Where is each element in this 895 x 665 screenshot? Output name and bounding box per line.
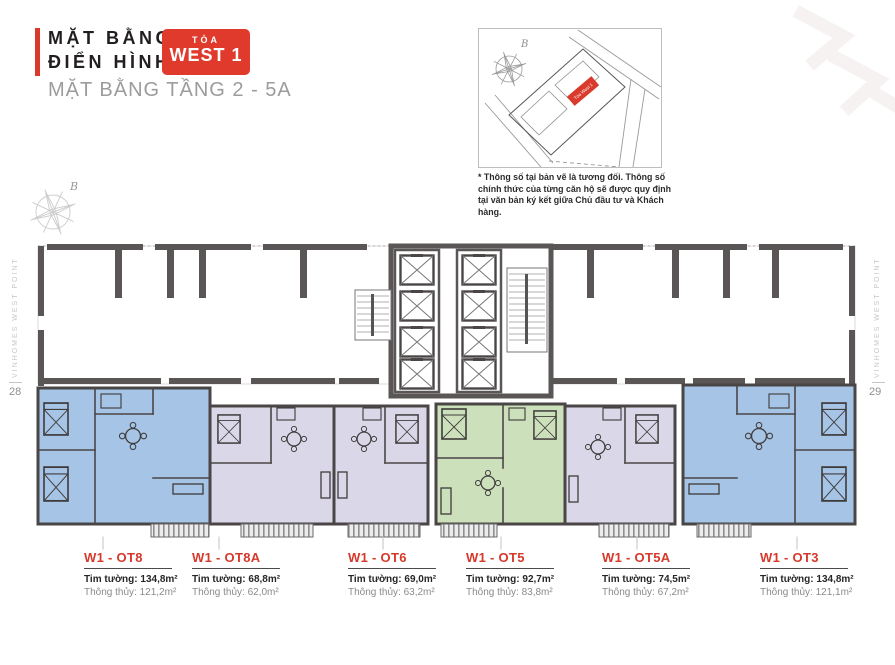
unit-area-clear: Thông thủy: 121,1m²	[760, 587, 870, 598]
unit-area-clear: Thông thủy: 67,2m²	[602, 587, 712, 598]
left-rail-tick	[9, 382, 22, 383]
unit-label-ot3: W1 - OT3 Tim tường: 134,8m² Thông thủy: …	[760, 550, 870, 598]
brochure-page: MẶT BẰNG ĐIỂN HÌNH TÒA WEST 1 MẶT BẰNG T…	[0, 0, 895, 665]
left-page-number: 28	[9, 386, 21, 398]
map-compass-label: B	[520, 39, 528, 50]
unit-name: W1 - OT5	[466, 550, 576, 565]
unit-label-rule	[760, 568, 848, 569]
apartment-unit-ot3	[683, 385, 855, 524]
unit-label-ot5: W1 - OT5 Tim tường: 92,7m² Thông thủy: 8…	[466, 550, 576, 598]
right-rail-tick	[872, 382, 885, 383]
elevator-bank-east	[457, 250, 501, 392]
left-rail-text: VINHOMES WEST POINT	[12, 262, 19, 378]
unit-area-wall: Tim tường: 134,8m²	[84, 574, 194, 585]
unit-name: W1 - OT8A	[192, 550, 302, 565]
plan-compass-label: B	[69, 180, 78, 193]
elevator-bank-west	[395, 250, 439, 392]
stairwell-west	[355, 290, 391, 340]
apartment-unit-ot5	[436, 404, 565, 524]
title-accent-bar	[35, 28, 40, 76]
unit-area-wall: Tim tường: 69,0m²	[348, 574, 458, 585]
unit-label-rule	[466, 568, 554, 569]
unit-label-ot5a: W1 - OT5A Tim tường: 74,5m² Thông thủy: …	[602, 550, 712, 598]
unit-label-ot6: W1 - OT6 Tim tường: 69,0m² Thông thủy: 6…	[348, 550, 458, 598]
unit-label-rule	[348, 568, 436, 569]
unit-area-wall: Tim tường: 68,8m²	[192, 574, 302, 585]
floor-plan	[33, 238, 863, 550]
page-subtitle: MẶT BẰNG TẦNG 2 - 5A	[48, 79, 292, 102]
unit-area-wall: Tim tường: 74,5m²	[602, 574, 712, 585]
unit-label-rule	[602, 568, 690, 569]
apartment-unit-ot5a	[565, 406, 675, 524]
apartment-unit-ot8a	[210, 406, 334, 524]
unit-label-ot8: W1 - OT8 Tim tường: 134,8m² Thông thủy: …	[84, 550, 194, 598]
unit-area-clear: Thông thủy: 62,0m²	[192, 587, 302, 598]
unit-area-clear: Thông thủy: 63,2m²	[348, 587, 458, 598]
right-rail-text: VINHOMES WEST POINT	[874, 262, 881, 378]
unit-name: W1 - OT8	[84, 550, 194, 565]
unit-area-clear: Thông thủy: 121,2m²	[84, 587, 194, 598]
unit-label-rule	[84, 568, 172, 569]
apartments	[38, 385, 855, 549]
brand-watermark-icon	[775, 0, 895, 130]
unit-name: W1 - OT6	[348, 550, 458, 565]
apartment-unit-ot6	[334, 406, 428, 524]
tower-badge: TÒA WEST 1	[162, 29, 250, 75]
unit-area-wall: Tim tường: 92,7m²	[466, 574, 576, 585]
right-page-number: 29	[869, 386, 881, 398]
unit-area-wall: Tim tường: 134,8m²	[760, 574, 870, 585]
unit-label-ot8a: W1 - OT8A Tim tường: 68,8m² Thông thủy: …	[192, 550, 302, 598]
map-site-block	[509, 49, 625, 155]
unit-name: W1 - OT3	[760, 550, 870, 565]
unit-label-rule	[192, 568, 280, 569]
unit-name: W1 - OT5A	[602, 550, 712, 565]
map-compass-icon	[486, 46, 531, 91]
tower-badge-name: WEST 1	[162, 45, 250, 65]
disclaimer-note: * Thông số tại bản vẽ là tương đối. Thôn…	[478, 172, 674, 218]
unit-area-clear: Thông thủy: 83,8m²	[466, 587, 576, 598]
site-location-map: B Tòa West 1	[478, 28, 662, 168]
stairwell-east	[507, 268, 547, 352]
tower-badge-top: TÒA	[162, 35, 250, 45]
page-title: MẶT BẰNG ĐIỂN HÌNH	[48, 26, 173, 74]
plan-compass-icon: B	[22, 176, 88, 242]
map-highlighted-building: Tòa West 1	[567, 76, 599, 106]
balconies	[151, 524, 751, 537]
label-leader-lines	[103, 537, 797, 549]
apartment-unit-ot8	[38, 388, 210, 524]
